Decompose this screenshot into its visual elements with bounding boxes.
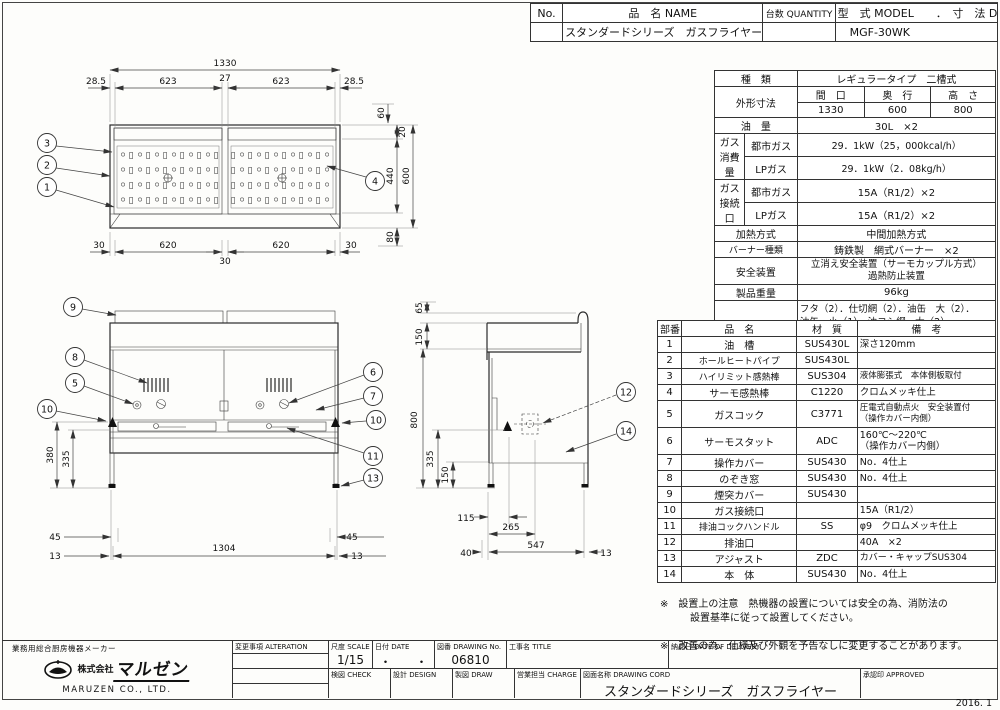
svg-text:800: 800	[410, 411, 420, 428]
model-header: 型 式 MODEL ． 寸 法 DIMENSION	[835, 4, 997, 23]
scale-label: 尺度 SCALE	[329, 641, 372, 653]
date-label: 日付 DATE	[373, 641, 434, 653]
scale-value: 1/15	[329, 653, 372, 667]
table-row: 4サーモ感熱棒C1220クロムメッキ仕上	[658, 385, 996, 401]
spec-height-value: 800	[931, 103, 996, 118]
company-logo-text: マルゼン	[113, 655, 193, 682]
drawing-name-cell: 図面名称 DRAWING CORD スタンダードシリーズ ガスフライヤー	[580, 668, 860, 698]
company-name-en: MARUZEN CO., LTD.	[2, 685, 232, 695]
svg-text:14: 14	[620, 427, 632, 438]
svg-text:20: 20	[398, 126, 408, 138]
table-row: 12排油口40A ×2	[658, 535, 996, 551]
svg-text:11: 11	[367, 452, 379, 463]
technical-drawing: 1330 28.5 623 27 623 28.5 60 20	[0, 0, 660, 660]
side-balloons: 12 14	[543, 383, 636, 453]
svg-text:13: 13	[367, 474, 379, 485]
table-row: 1油 槽SUS430L深さ120mm	[658, 337, 996, 353]
svg-text:547: 547	[527, 541, 544, 551]
svg-text:1304: 1304	[213, 544, 236, 554]
company-tagline: 業務用総合厨房機器メーカー	[2, 641, 232, 654]
spec-conn-lp-label: LPガス	[745, 203, 798, 226]
alteration-cell: 変更事項 ALTERATION	[232, 640, 328, 698]
maruzen-emblem-icon	[43, 659, 73, 679]
table-row: 5ガスコックC3771圧電式自動点火 安全装置付 （操作カバー内側）	[658, 401, 996, 428]
spec-width-label: 間 口	[797, 87, 864, 103]
svg-text:335: 335	[426, 450, 436, 467]
product-name: スタンダードシリーズ ガスフライヤー	[563, 23, 763, 42]
spec-width-value: 1330	[797, 103, 864, 118]
design-label: 設計 DESIGN	[391, 669, 452, 681]
svg-text:7: 7	[370, 392, 376, 403]
qty-value	[763, 23, 835, 42]
spec-gas-consumption-label: ガス 消費量	[715, 134, 745, 180]
approved-cell: 承認印 APPROVED	[860, 668, 998, 698]
spec-lp-gas-label: LPガス	[745, 157, 798, 180]
svg-text:6: 6	[370, 368, 376, 379]
svg-text:150: 150	[441, 466, 451, 483]
svg-text:1: 1	[44, 183, 50, 194]
spec-weight-label: 製品重量	[715, 285, 798, 301]
spec-dims-label: 外形寸法	[715, 87, 798, 118]
svg-text:28.5: 28.5	[344, 77, 364, 87]
spec-type-label: 種 類	[715, 71, 798, 87]
svg-text:1330: 1330	[214, 59, 237, 69]
drain-handles	[154, 424, 300, 429]
table-row: 3ハイリミット感熱棒SUS304液体膨張式 本体側板取付	[658, 369, 996, 385]
delivery-label: 納品日 DATE OF DELIVERY	[669, 641, 998, 653]
spec-heating-label: 加熱方式	[715, 226, 798, 242]
design-cell: 設計 DESIGN	[390, 668, 452, 698]
table-row: 7操作カバーSUS430No．4仕上	[658, 455, 996, 471]
svg-text:65: 65	[415, 302, 425, 313]
drawing-name-label: 図面名称 DRAWING CORD	[581, 669, 860, 681]
spec-conn-city-label: 都市ガス	[745, 180, 798, 203]
svg-text:27: 27	[219, 74, 230, 84]
drawing-no-cell: 図番 DRAWING No. 06810	[434, 640, 506, 668]
spec-burner-value: 鋳鉄製 網式バーナー ×2	[797, 242, 995, 258]
spec-weight-value: 96kg	[797, 285, 995, 301]
svg-text:8: 8	[72, 353, 78, 364]
scale-cell: 尺度 SCALE 1/15	[328, 640, 372, 668]
plan-view: 1330 28.5 623 27 623 28.5 60 20	[38, 59, 419, 267]
parts-col-no: 部番	[658, 321, 682, 337]
spec-burner-label: バーナー種類	[715, 242, 798, 258]
svg-text:45: 45	[49, 533, 60, 543]
alteration-row	[233, 653, 328, 668]
parts-col-material: 材 質	[797, 321, 858, 337]
svg-text:335: 335	[62, 450, 72, 467]
svg-text:623: 623	[272, 77, 289, 87]
gas-inlet-marker-left	[108, 417, 117, 427]
draw-label: 製図 DRAW	[453, 669, 514, 681]
svg-text:4: 4	[372, 177, 378, 188]
front-view: 380 335 45 45 13 1304 13	[38, 298, 387, 563]
svg-text:600: 600	[402, 167, 412, 184]
company-logo: 株式会社 マルゼン	[2, 655, 232, 682]
flue-coil-right	[227, 311, 335, 323]
spec-gas-conn-label: ガス 接続口	[715, 180, 745, 226]
flue-coil-left	[115, 311, 223, 323]
drain-position-marker	[503, 421, 512, 431]
spec-oil-value: 30L ×2	[797, 118, 995, 134]
svg-text:40: 40	[460, 549, 472, 559]
svg-text:10: 10	[370, 416, 382, 427]
table-row: 8のぞき窓SUS430No．4仕上	[658, 471, 996, 487]
date-cell: 日付 DATE ・ ・	[372, 640, 434, 668]
flue-grille-right	[228, 128, 336, 140]
table-row: 9煙突カバーSUS430	[658, 487, 996, 503]
svg-text:60: 60	[377, 107, 387, 119]
front-legs	[109, 453, 340, 488]
spec-type-value: レギュラータイプ 二槽式	[797, 71, 995, 87]
parts-table: 部番 品 名 材 質 備 考 1油 槽SUS430L深さ120mm 2ホールヒー…	[657, 320, 996, 583]
title-cell: 工事名 TITLE	[506, 640, 668, 668]
issue-date: 2016. 1	[956, 698, 992, 709]
title-header-table: No. 品 名 NAME 台数 QUANTITY 型 式 MODEL ． 寸 法…	[530, 3, 998, 42]
no-header: No.	[531, 4, 563, 23]
spec-height-label: 高 さ	[931, 87, 996, 103]
front-balloons: 9 8 5 10 6 7 10 11	[38, 298, 386, 488]
spec-depth-label: 奥 行	[864, 87, 931, 103]
svg-text:9: 9	[70, 303, 76, 314]
spec-city-gas-value: 29．1kW（25，000kcal/h）	[797, 134, 995, 157]
spec-safety-value: 立消え安全装置（サーモカップル方式） 過熱防止装置	[797, 258, 995, 285]
svg-text:45: 45	[346, 533, 357, 543]
svg-text:150: 150	[415, 328, 425, 345]
svg-text:440: 440	[386, 167, 396, 184]
svg-text:265: 265	[502, 523, 519, 533]
parts-col-name: 品 名	[682, 321, 797, 337]
company-block: 業務用総合厨房機器メーカー 株式会社 マルゼン MARUZEN CO., LTD…	[2, 640, 232, 698]
drawing-no-value: 06810	[435, 653, 506, 667]
charge-cell: 営業担当 CHARGE	[514, 668, 580, 698]
spec-lp-gas-value: 29．1kW（2．08kg/h）	[797, 157, 995, 180]
svg-text:10: 10	[41, 405, 53, 416]
table-row: 6サーモスタットADC160℃～220℃ （操作カバー内側）	[658, 428, 996, 455]
gas-inlet-marker-right	[331, 417, 340, 427]
svg-text:13: 13	[351, 552, 362, 562]
svg-text:13: 13	[600, 549, 611, 559]
spec-conn-lp-value: 15A（R1/2）×2	[797, 203, 995, 226]
charge-label: 営業担当 CHARGE	[515, 669, 580, 681]
spec-conn-city-value: 15A（R1/2）×2	[797, 180, 995, 203]
drawing-name-value: スタンダードシリーズ ガスフライヤー	[581, 681, 860, 700]
check-label: 検図 CHECK	[329, 669, 390, 681]
drawing-sheet: 1330 28.5 623 27 623 28.5 60 20	[0, 0, 1000, 710]
draw-cell: 製図 DRAW	[452, 668, 514, 698]
table-row: 13アジャストZDCカバー・キャップSUS304	[658, 551, 996, 567]
svg-text:380: 380	[46, 446, 56, 463]
alteration-label: 変更事項 ALTERATION	[233, 641, 328, 653]
svg-text:620: 620	[159, 241, 176, 251]
qty-header: 台数 QUANTITY	[763, 4, 835, 23]
company-kk: 株式会社	[77, 662, 113, 675]
table-row: 11排油コックハンドルSSφ9 クロムメッキ仕上	[658, 519, 996, 535]
spec-depth-value: 600	[864, 103, 931, 118]
approved-label: 承認印 APPROVED	[861, 669, 998, 681]
louver-vents	[144, 378, 291, 392]
svg-text:623: 623	[159, 77, 176, 87]
svg-text:13: 13	[49, 552, 60, 562]
check-cell: 検図 CHECK	[328, 668, 390, 698]
svg-text:28.5: 28.5	[86, 77, 106, 87]
parts-col-note: 備 考	[857, 321, 995, 337]
svg-text:2: 2	[44, 161, 50, 172]
svg-text:30: 30	[93, 241, 105, 251]
table-row: 10ガス接続口15A（R1/2）	[658, 503, 996, 519]
control-knobs	[133, 400, 289, 410]
spec-safety-label: 安全装置	[715, 258, 798, 285]
gas-valve-assembly	[514, 414, 546, 434]
delivery-cell: 納品日 DATE OF DELIVERY	[668, 640, 998, 668]
table-row: 2ホールヒートパイプSUS430L	[658, 353, 996, 369]
svg-text:30: 30	[219, 257, 231, 267]
table-row: 14本 体SUS430No．4仕上	[658, 567, 996, 583]
side-legs	[488, 463, 589, 488]
spec-table: 種 類 レギュラータイプ 二槽式 外形寸法 間 口 奥 行 高 さ 1330 6…	[714, 70, 996, 358]
drawing-no-label: 図番 DRAWING No.	[435, 641, 506, 653]
svg-text:30: 30	[345, 241, 357, 251]
svg-text:5: 5	[72, 379, 78, 390]
note-installation: ※ 設置上の注意 熱機器の設置については安全の為、消防法の 設置基準に従って設置…	[660, 598, 996, 626]
alteration-row	[233, 683, 328, 699]
svg-text:80: 80	[386, 231, 396, 243]
svg-text:3: 3	[44, 139, 50, 150]
side-view: 65 150 800 335 150 115	[410, 302, 636, 560]
svg-text:620: 620	[272, 241, 289, 251]
no-value	[531, 23, 563, 42]
spec-city-gas-label: 都市ガス	[745, 134, 798, 157]
svg-text:12: 12	[620, 388, 632, 399]
flue-grille-left	[114, 128, 222, 140]
spec-oil-label: 油 量	[715, 118, 798, 134]
spec-heating-value: 中間加熱方式	[797, 226, 995, 242]
model-value: MGF-30WK	[835, 23, 997, 42]
alteration-row	[233, 668, 328, 683]
svg-text:115: 115	[457, 514, 474, 524]
title-label: 工事名 TITLE	[507, 641, 668, 653]
name-header: 品 名 NAME	[563, 4, 763, 23]
